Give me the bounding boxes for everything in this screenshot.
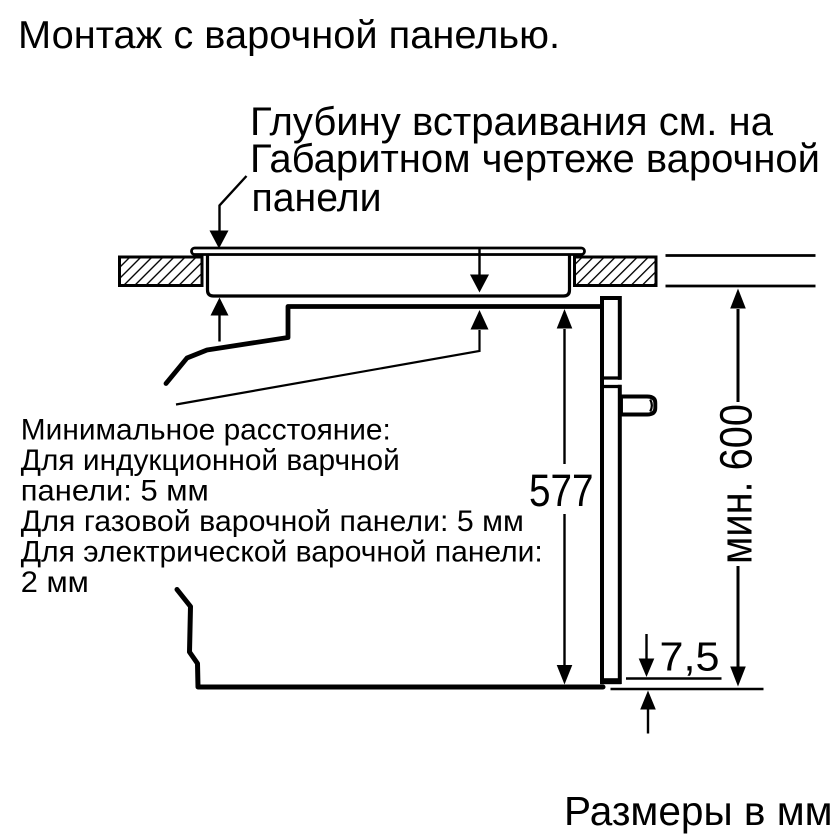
svg-text:7,5: 7,5	[660, 633, 720, 679]
svg-text:Минимальное расстояние:: Минимальное расстояние:	[21, 414, 391, 447]
svg-text:панели: панели	[252, 176, 382, 220]
svg-text:2 мм: 2 мм	[21, 566, 89, 599]
svg-text:577: 577	[529, 465, 594, 516]
svg-text:мин. 600: мин. 600	[711, 404, 762, 564]
svg-text:Для индукционной варчной: Для индукционной варчной	[21, 444, 400, 477]
svg-text:Для электрической варочной пан: Для электрической варочной панели:	[21, 536, 543, 569]
svg-text:Для газовой варочной панели: 5: Для газовой варочной панели: 5 мм	[21, 505, 524, 538]
svg-text:Габаритном чертеже варочной: Габаритном чертеже варочной	[250, 137, 820, 181]
svg-text:Монтаж с варочной панелью.: Монтаж с варочной панелью.	[18, 14, 560, 57]
svg-text:панели: 5 мм: панели: 5 мм	[21, 475, 209, 508]
svg-text:Размеры в мм: Размеры в мм	[564, 788, 833, 834]
